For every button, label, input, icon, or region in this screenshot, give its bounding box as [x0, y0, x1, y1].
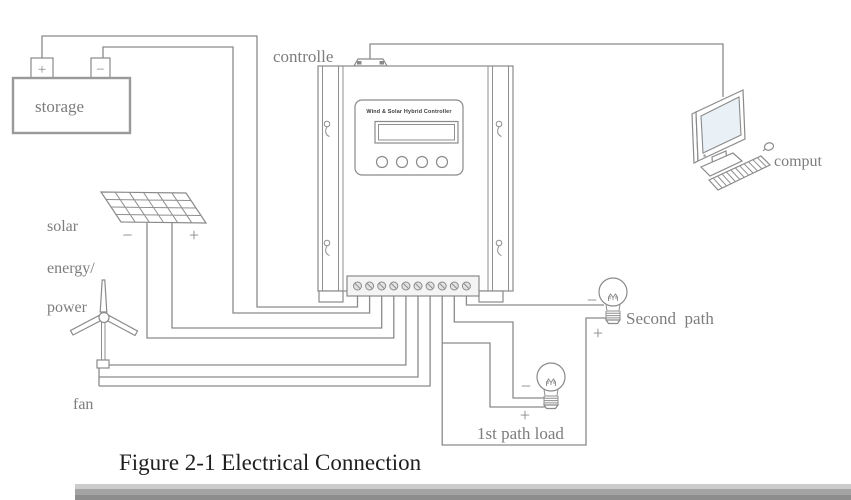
second-path-bulb	[599, 278, 627, 324]
bulb-screw-base	[606, 311, 621, 320]
mouse	[764, 142, 775, 152]
turbine-blade-right	[107, 316, 138, 336]
turbine-blade-top	[100, 280, 107, 312]
turbine-blade-left	[71, 316, 102, 336]
bulb-glass	[599, 278, 627, 306]
electrical-connection-diagram: + − storage − + solar energy/ power fan	[0, 0, 851, 500]
solar-label-line1: solar	[47, 218, 79, 235]
first-path-bulb	[537, 363, 565, 409]
controller: Wind & Solar Hybrid Controller	[318, 59, 513, 302]
solar-label-line3: power	[47, 299, 88, 316]
solar-label-line2: energy/	[47, 260, 95, 277]
first-path-label: 1st path load	[477, 424, 564, 443]
connector-tab-left	[357, 61, 362, 65]
second-path-label: Second path	[626, 309, 714, 328]
storage-label: storage	[35, 97, 84, 116]
fan-label: fan	[73, 396, 93, 413]
solar-panel: − +	[101, 192, 206, 245]
second-path-negative-sign: −	[587, 290, 597, 310]
first-path-negative-sign: −	[521, 376, 531, 396]
bulb-glass	[537, 363, 565, 391]
bottom-edge-band	[75, 484, 851, 500]
controller-button-3[interactable]	[417, 157, 428, 168]
solar-negative-sign: −	[122, 225, 132, 245]
second-path-positive-sign: +	[593, 323, 603, 343]
turbine-foot	[97, 360, 109, 368]
first-path-positive-sign: +	[520, 405, 530, 425]
turbine-pole	[102, 322, 106, 360]
computer	[692, 90, 774, 190]
controller-panel-title: Wind & Solar Hybrid Controller	[366, 109, 452, 115]
storage-battery: + − storage	[13, 58, 130, 133]
wire-first-load-negative	[454, 296, 545, 398]
monitor-power-button[interactable]	[704, 155, 706, 157]
controller-foot-right	[479, 291, 503, 302]
controller-label: controlle	[273, 47, 333, 66]
connector-tab-right	[380, 61, 385, 65]
turbine-hub	[99, 313, 109, 323]
solar-positive-sign: +	[189, 225, 199, 245]
wire-fan-phase3	[99, 296, 430, 386]
monitor-screen	[701, 97, 741, 153]
controller-button-1[interactable]	[377, 157, 388, 168]
mouse-cable	[763, 149, 765, 151]
battery-positive-sign: +	[38, 62, 46, 78]
bulb-screw-base	[544, 396, 559, 405]
battery-negative-sign: −	[96, 62, 104, 78]
figure-canvas: + − storage − + solar energy/ power fan	[0, 0, 851, 500]
bulb-tip	[544, 405, 558, 409]
figure-caption: Figure 2-1 Electrical Connection	[119, 450, 422, 475]
bulb-tip	[606, 320, 620, 324]
wind-turbine	[71, 280, 138, 368]
controller-foot-left	[319, 291, 343, 302]
controller-button-2[interactable]	[397, 157, 408, 168]
controller-button-4[interactable]	[437, 157, 448, 168]
computer-label: comput	[774, 153, 823, 170]
